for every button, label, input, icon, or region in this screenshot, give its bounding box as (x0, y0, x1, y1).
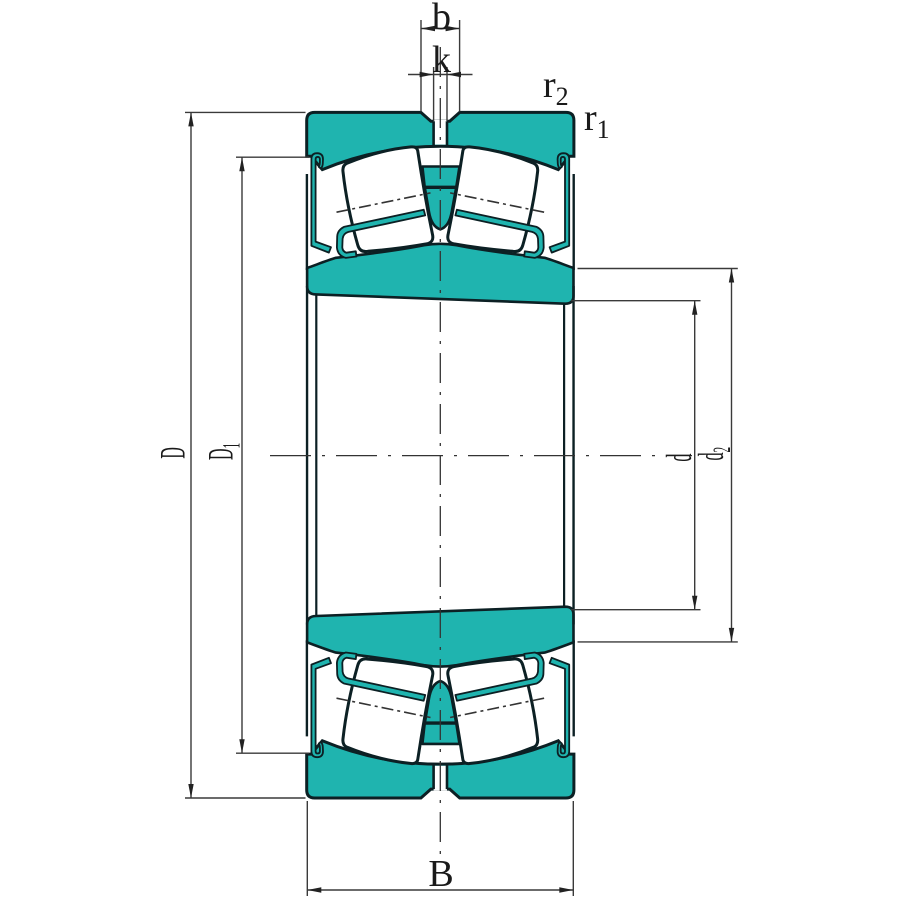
svg-text:D: D (153, 447, 193, 459)
svg-text:r2: r2 (543, 64, 569, 111)
svg-text:b: b (432, 0, 451, 38)
svg-text:d2: d2 (692, 447, 736, 461)
svg-text:r1: r1 (584, 97, 610, 144)
svg-text:k: k (432, 39, 451, 81)
svg-text:D1: D1 (201, 443, 245, 460)
svg-text:B: B (428, 853, 453, 895)
